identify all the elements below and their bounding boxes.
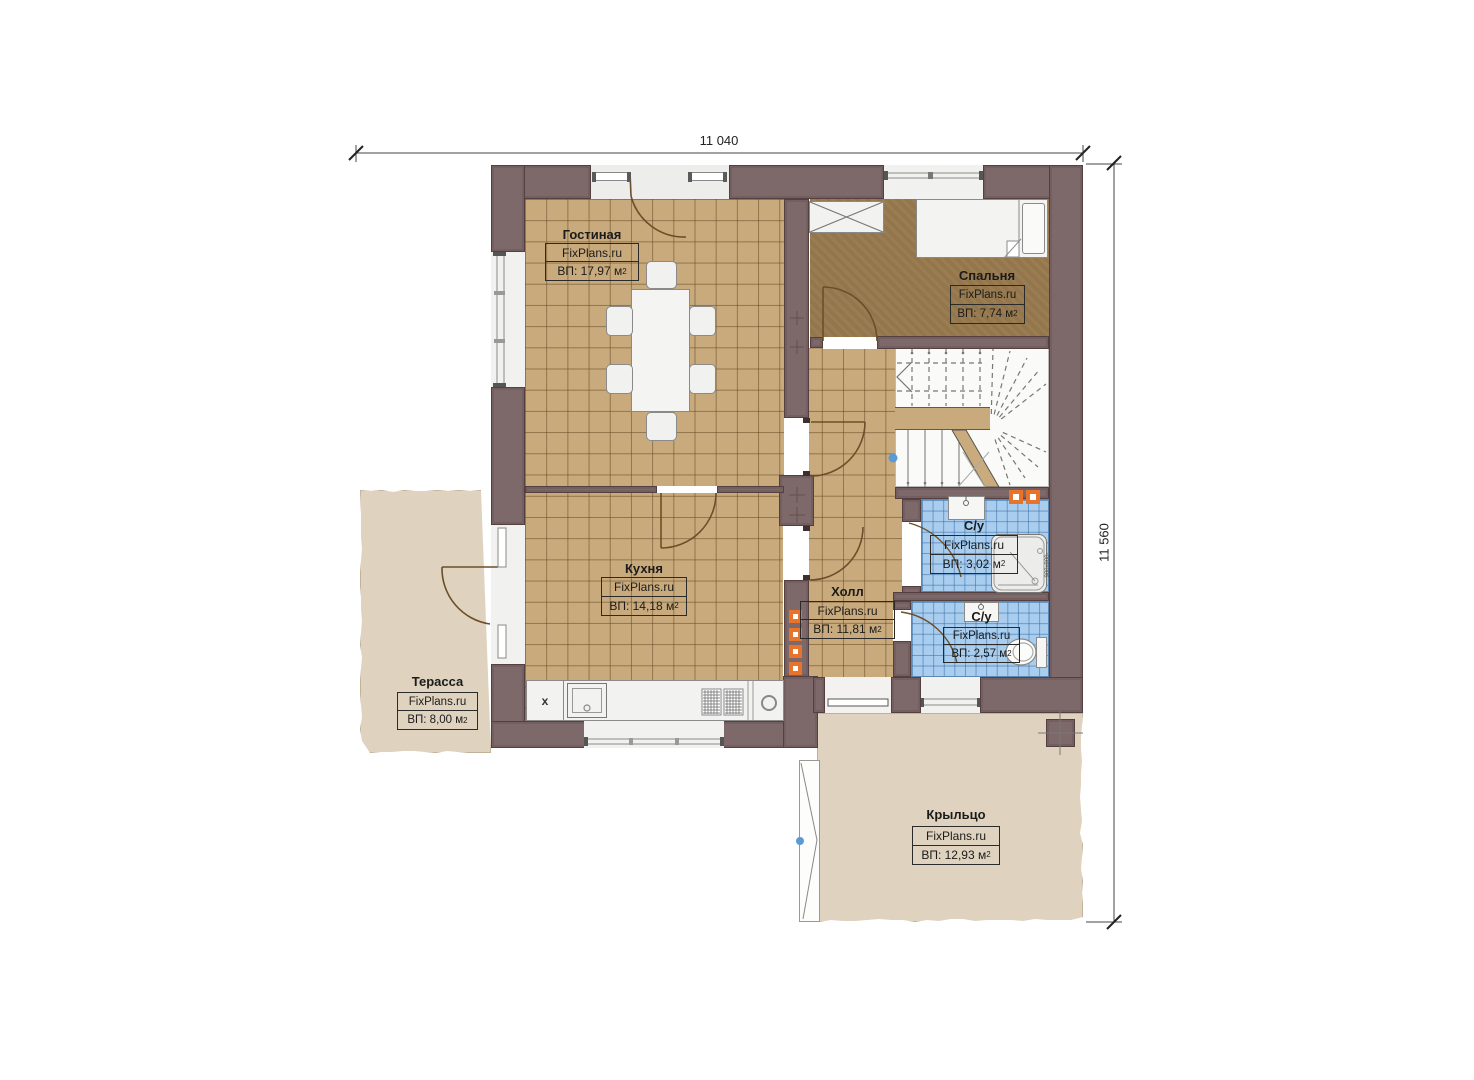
svg-text:900x900: 900x900 xyxy=(1045,554,1051,578)
